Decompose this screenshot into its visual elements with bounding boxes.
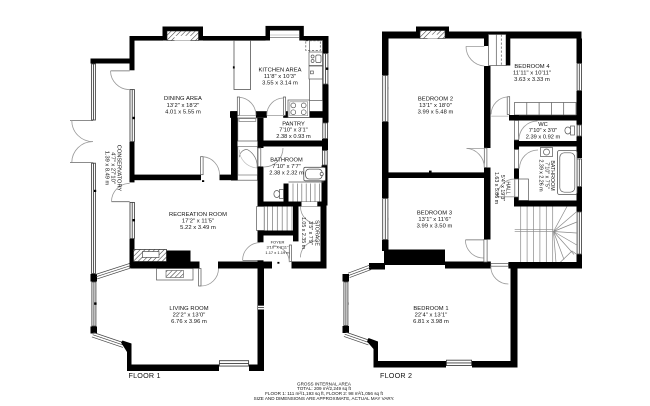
svg-text:2.38 x 0.93 m: 2.38 x 0.93 m xyxy=(276,134,311,140)
svg-text:4.01 x 5.55 m: 4.01 x 5.55 m xyxy=(165,110,201,116)
svg-text:BEDROOM 3: BEDROOM 3 xyxy=(417,210,452,216)
svg-text:KITCHEN AREA: KITCHEN AREA xyxy=(258,67,301,73)
svg-text:1.17 x 1.19 m: 1.17 x 1.19 m xyxy=(265,250,290,255)
svg-text:BATHROOM: BATHROOM xyxy=(270,158,303,164)
svg-text:2.39 x 2.26 m: 2.39 x 2.26 m xyxy=(538,159,544,192)
svg-text:3.55 x 3.14 m: 3.55 x 3.14 m xyxy=(262,81,298,87)
svg-text:4’7" x 27’10": 4’7" x 27’10" xyxy=(110,152,116,184)
svg-text:SIZE AND DIMENSIONS ARE APPROX: SIZE AND DIMENSIONS ARE APPROXIMATE, ACT… xyxy=(254,396,395,401)
svg-text:13’1" x 18’0": 13’1" x 18’0" xyxy=(419,103,452,109)
svg-text:7’10" x 7’7": 7’10" x 7’7" xyxy=(272,164,300,170)
svg-text:2.38 x 2.32 m: 2.38 x 2.32 m xyxy=(269,171,304,177)
svg-text:DINING AREA: DINING AREA xyxy=(164,96,202,102)
svg-text:13’1" x 11’6": 13’1" x 11’6" xyxy=(418,217,450,223)
svg-text:BEDROOM 1: BEDROOM 1 xyxy=(413,306,448,312)
svg-text:PANTRY: PANTRY xyxy=(282,121,305,127)
svg-text:11’8" x 10’3": 11’8" x 10’3" xyxy=(264,74,296,80)
svg-text:FLOOR 1: FLOOR 1 xyxy=(129,371,161,380)
svg-text:13’2" x 18’2": 13’2" x 18’2" xyxy=(167,103,200,109)
svg-text:LIVING ROOM: LIVING ROOM xyxy=(169,306,208,312)
svg-text:FLOOR 2: FLOOR 2 xyxy=(380,371,412,380)
svg-text:17’2" x 11’5": 17’2" x 11’5" xyxy=(182,218,214,224)
svg-text:3.63 x 3.33 m: 3.63 x 3.33 m xyxy=(514,77,550,83)
svg-text:FOYER: FOYER xyxy=(271,239,285,244)
svg-text:BEDROOM 4: BEDROOM 4 xyxy=(514,64,550,70)
svg-text:1.63 x 5.86 m: 1.63 x 5.86 m xyxy=(493,172,499,205)
svg-text:BEDROOM 2: BEDROOM 2 xyxy=(418,96,453,102)
svg-text:11’11" x 10’11": 11’11" x 10’11" xyxy=(513,71,551,77)
svg-text:22’4" x 13’1": 22’4" x 13’1" xyxy=(415,312,448,318)
svg-text:3.99 x 5.48 m: 3.99 x 5.48 m xyxy=(418,110,454,116)
svg-text:1.05 x 2.35 m: 1.05 x 2.35 m xyxy=(300,217,306,250)
svg-text:3.99 x 3.50 m: 3.99 x 3.50 m xyxy=(417,223,453,229)
svg-text:CONSERVATORY: CONSERVATORY xyxy=(116,145,122,192)
svg-text:22’2" x 13’0": 22’2" x 13’0" xyxy=(173,312,206,318)
svg-text:6.76 x 3.96 m: 6.76 x 3.96 m xyxy=(171,319,207,325)
svg-text:7’10" x 3’1": 7’10" x 3’1" xyxy=(279,128,307,134)
svg-text:6.81 x 3.98 m: 6.81 x 3.98 m xyxy=(413,319,449,325)
svg-text:1.39 x 8.49 m: 1.39 x 8.49 m xyxy=(103,151,109,186)
svg-text:7’10" x 3’0": 7’10" x 3’0" xyxy=(529,128,557,134)
svg-text:3’5" x 7’9": 3’5" x 7’9" xyxy=(307,221,313,245)
svg-text:RECREATION ROOM: RECREATION ROOM xyxy=(169,212,227,218)
svg-text:3’10" x 3’11": 3’10" x 3’11" xyxy=(267,245,289,250)
svg-text:WC: WC xyxy=(538,122,547,128)
svg-text:5.22 x 3.49 m: 5.22 x 3.49 m xyxy=(180,225,216,231)
svg-text:STORAGE: STORAGE xyxy=(314,220,320,246)
svg-text:2.39 x 0.92 m: 2.39 x 0.92 m xyxy=(526,134,561,140)
